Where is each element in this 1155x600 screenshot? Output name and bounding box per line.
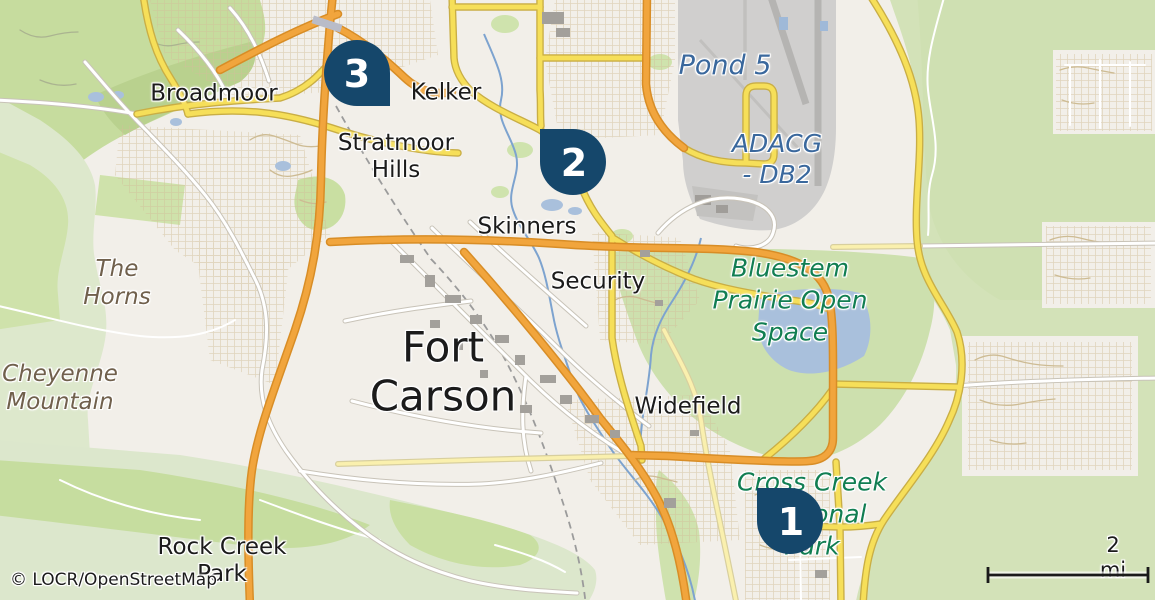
marker-overlay: 1 2 3	[0, 0, 1155, 600]
map-marker-2[interactable]: 2	[540, 129, 606, 195]
marker-1-number: 1	[778, 500, 804, 544]
map-widget[interactable]: Broadmoor Kelker Stratmoor Hills Skinner…	[0, 0, 1155, 600]
marker-2-number: 2	[561, 141, 587, 185]
marker-3-number: 3	[344, 52, 370, 96]
map-marker-1[interactable]: 1	[757, 488, 823, 554]
map-marker-3[interactable]: 3	[324, 40, 390, 106]
scale-bar	[988, 567, 1148, 583]
